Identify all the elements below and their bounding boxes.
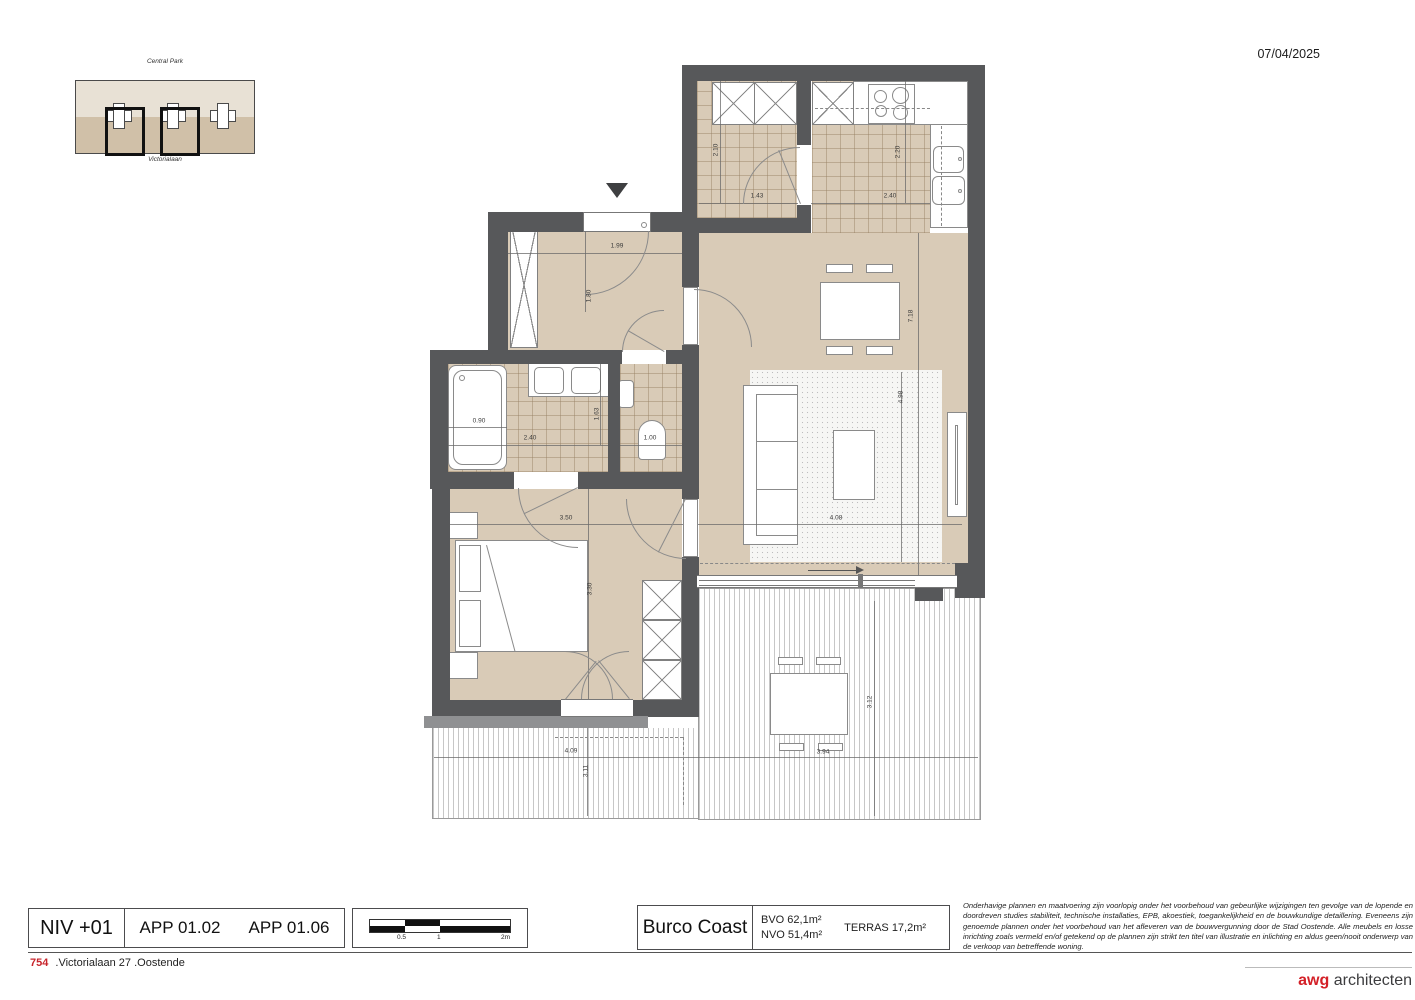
dining-table [820,282,900,340]
wall [682,232,699,287]
scale-tick-label: 2m [501,934,510,941]
site-key-plan: Central Park Victorialaan [65,58,265,168]
terrace-left-deck [432,728,700,819]
wall [682,81,697,233]
overhead-cabinet-dashed [815,108,930,109]
terrace-door [561,699,633,717]
scale-tick-label: 0.5 [397,934,406,941]
dim-line [699,203,930,204]
dim-label: 2.10 [713,144,720,157]
sofa-cushion-line [757,441,797,442]
dim-label: 3.11 [583,765,590,777]
wall [682,345,699,499]
dim-line [600,364,601,445]
wall [682,65,985,81]
sofa-cushion-line [757,489,797,490]
dim-label: 4.09 [565,748,578,755]
project-address: .Victorialaan 27 .Oostende [55,957,184,969]
dim-label: 3.94 [817,749,830,756]
dryer-icon [754,82,797,125]
wardrobe-icon [642,620,682,660]
site-highlight-app-0102 [105,107,145,156]
wall [432,482,450,718]
wall [682,218,797,233]
burner-icon [875,105,887,117]
entrance-arrow-icon [606,183,628,198]
dim-label: 0.90 [473,418,486,425]
logo-awg: awg [1298,972,1329,989]
dining-chair [866,346,893,355]
washbasin-bowl [571,367,601,394]
disclaimer-text: Onderhavige plannen en maatvoering zijn … [963,901,1413,952]
wall [608,364,620,474]
nightstand [448,512,478,539]
terras-area: TERRAS 17,2m² [844,922,926,934]
terrace-railing [699,580,915,586]
wall [578,472,682,489]
dim-label: 7.18 [908,310,915,323]
dim-label: 1.99 [611,243,624,250]
dim-line [620,445,682,446]
nvo-area: NVO 51,4m² [761,928,822,942]
firm-logo: awg architecten [1252,972,1412,990]
tap-icon [958,189,962,193]
pillow [459,545,481,592]
sliding-direction-arrow-icon [856,566,864,574]
project-number: 754 [30,957,48,969]
bvo-area: BVO 62,1m² [761,913,822,927]
burner-icon [874,90,887,103]
dim-line [448,445,608,446]
dim-label: 2.40 [524,435,537,442]
terrace-chair [816,657,841,665]
dim-label: 3.12 [867,696,874,709]
site-core-icon [217,103,229,129]
site-area-label: Central Park [65,58,265,65]
sliding-door-dashed [700,563,955,564]
dim-line [448,427,507,428]
terrace-boundary-dashed [683,737,684,805]
dim-label: 4.98 [898,391,905,404]
scale-bar-segment [440,926,510,932]
wardrobe-icon [642,660,682,700]
door-knob-icon [641,222,647,228]
scale-bar-segment [370,926,405,932]
dim-label: 3.30 [587,583,594,596]
logo-divider [1245,967,1412,968]
terrace-chair [778,657,803,665]
cooktop [868,84,915,124]
technical-shaft-icon [510,222,538,348]
dim-label: 2.40 [884,193,897,200]
scale-bar-box: 0.5 1 2m [352,908,528,948]
sliding-direction-line [808,570,858,571]
dim-line [918,233,919,576]
footer-divider [28,952,1412,953]
dining-chair [826,346,853,355]
site-street-label: Victorialaan [65,156,265,163]
wc-door [622,350,666,364]
sheet-date: 07/04/2025 [1195,47,1320,61]
terrace-chair [779,743,804,751]
pillow [459,600,481,647]
dim-label: 3.50 [560,515,573,522]
areas-box: BVO 62,1m² NVO 51,4m² TERRAS 17,2m² [752,905,950,950]
wall [968,65,985,598]
scale-tick-label: 1 [437,934,441,941]
dim-label: 1.43 [751,193,764,200]
site-highlight-app-0106 [160,107,200,156]
dim-label: 4.08 [830,515,843,522]
dim-label: 1.00 [644,435,657,442]
fridge-icon [812,82,854,125]
footer-project-line: 754 .Victorialaan 27 .Oostende [30,957,185,969]
wall [430,350,448,482]
wall [797,81,811,145]
apartment-box: APP 01.02 APP 01.06 [124,908,345,948]
dim-label: 2.20 [895,146,902,159]
dim-label: 1.80 [586,290,593,303]
dim-label: 1.63 [594,408,601,421]
level-box: NIV +01 [28,908,125,948]
dining-chair [826,264,853,273]
wall [430,350,622,364]
wall [432,700,563,717]
terrace-table [770,673,848,735]
nightstand [448,652,478,679]
washbasin-bowl [534,367,564,394]
apartment-2-label: APP 01.06 [249,918,330,938]
apartment-1-label: APP 01.02 [140,918,221,938]
scale-bar-segment [405,920,440,926]
dim-line [450,524,962,525]
logo-architecten: architecten [1334,972,1412,989]
wall [797,205,811,233]
wall [955,563,985,598]
scale-bar [369,919,511,933]
washer-icon [712,82,755,125]
burner-icon [892,87,909,104]
wall [633,700,699,717]
dining-chair [866,264,893,273]
hand-basin [618,380,634,408]
wall-outer-lining [424,716,648,728]
dim-line [720,81,721,203]
coffee-table [833,430,875,500]
bathroom-door [514,472,578,489]
site-building-band [75,80,255,154]
wall [488,212,583,232]
overhead-cabinet-dashed [941,126,942,226]
project-name-box: Burco Coast [637,905,753,950]
drain-icon [459,375,465,381]
dim-line [434,757,978,758]
terrace-boundary-dashed [555,737,683,738]
dim-line [905,81,906,203]
dim-line [874,601,875,816]
wall [488,232,508,352]
tap-icon [958,157,962,161]
sideboard-detail [955,425,958,505]
plan-sheet: 07/04/2025 Central Park Victorialaan [0,0,1415,1000]
wardrobe-icon [642,580,682,620]
sofa-seat [756,394,797,536]
